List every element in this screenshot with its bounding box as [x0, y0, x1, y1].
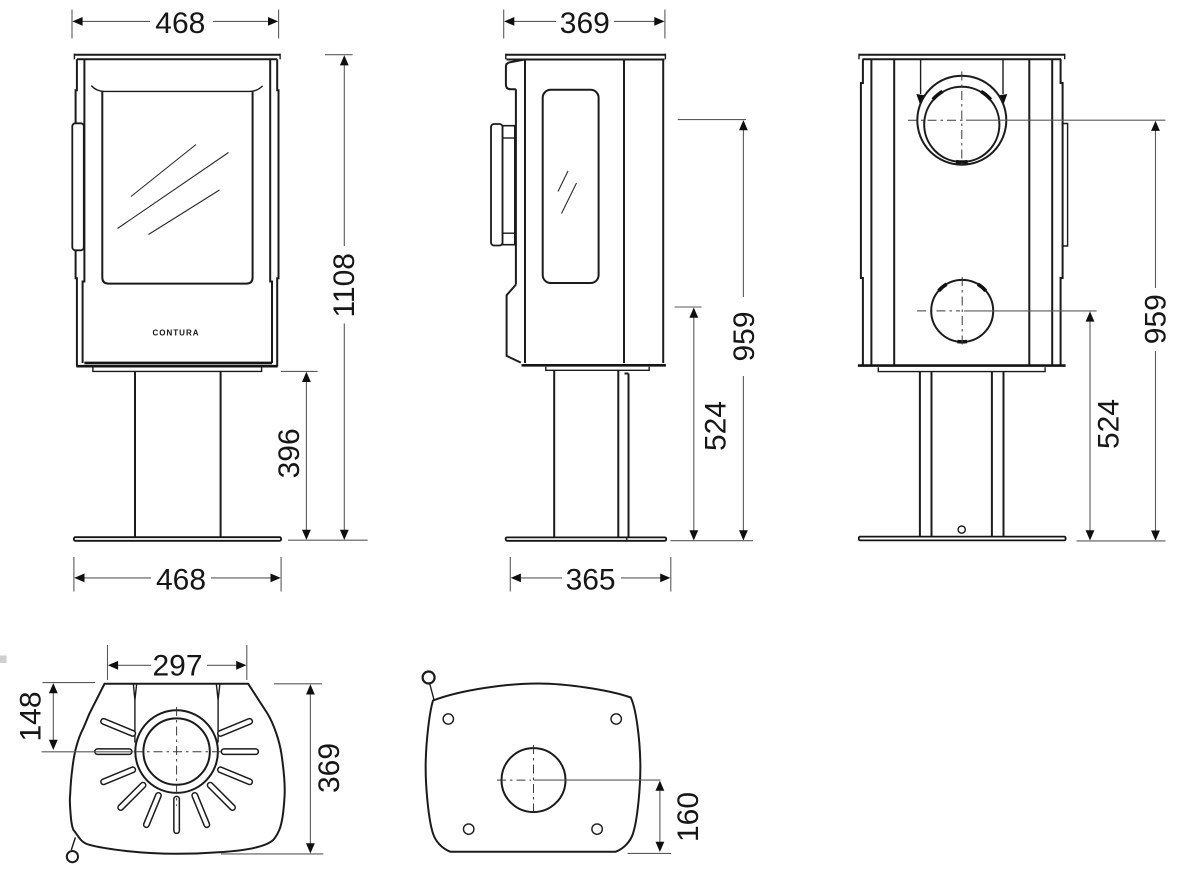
svg-text:365: 365 — [566, 563, 616, 596]
svg-text:297: 297 — [152, 649, 202, 682]
svg-text:468: 468 — [156, 563, 206, 596]
svg-text:148: 148 — [14, 691, 47, 741]
svg-text:524: 524 — [1092, 399, 1125, 449]
svg-text:369: 369 — [560, 7, 610, 40]
svg-text:369: 369 — [313, 743, 346, 793]
svg-text:160: 160 — [672, 792, 705, 842]
svg-text:524: 524 — [700, 401, 733, 451]
svg-text:CONTURA: CONTURA — [153, 329, 200, 338]
svg-text:959: 959 — [1139, 294, 1172, 344]
svg-text:468: 468 — [155, 7, 205, 40]
svg-text:396: 396 — [273, 428, 306, 478]
svg-text:959: 959 — [728, 311, 761, 361]
svg-text:1108: 1108 — [328, 253, 361, 318]
